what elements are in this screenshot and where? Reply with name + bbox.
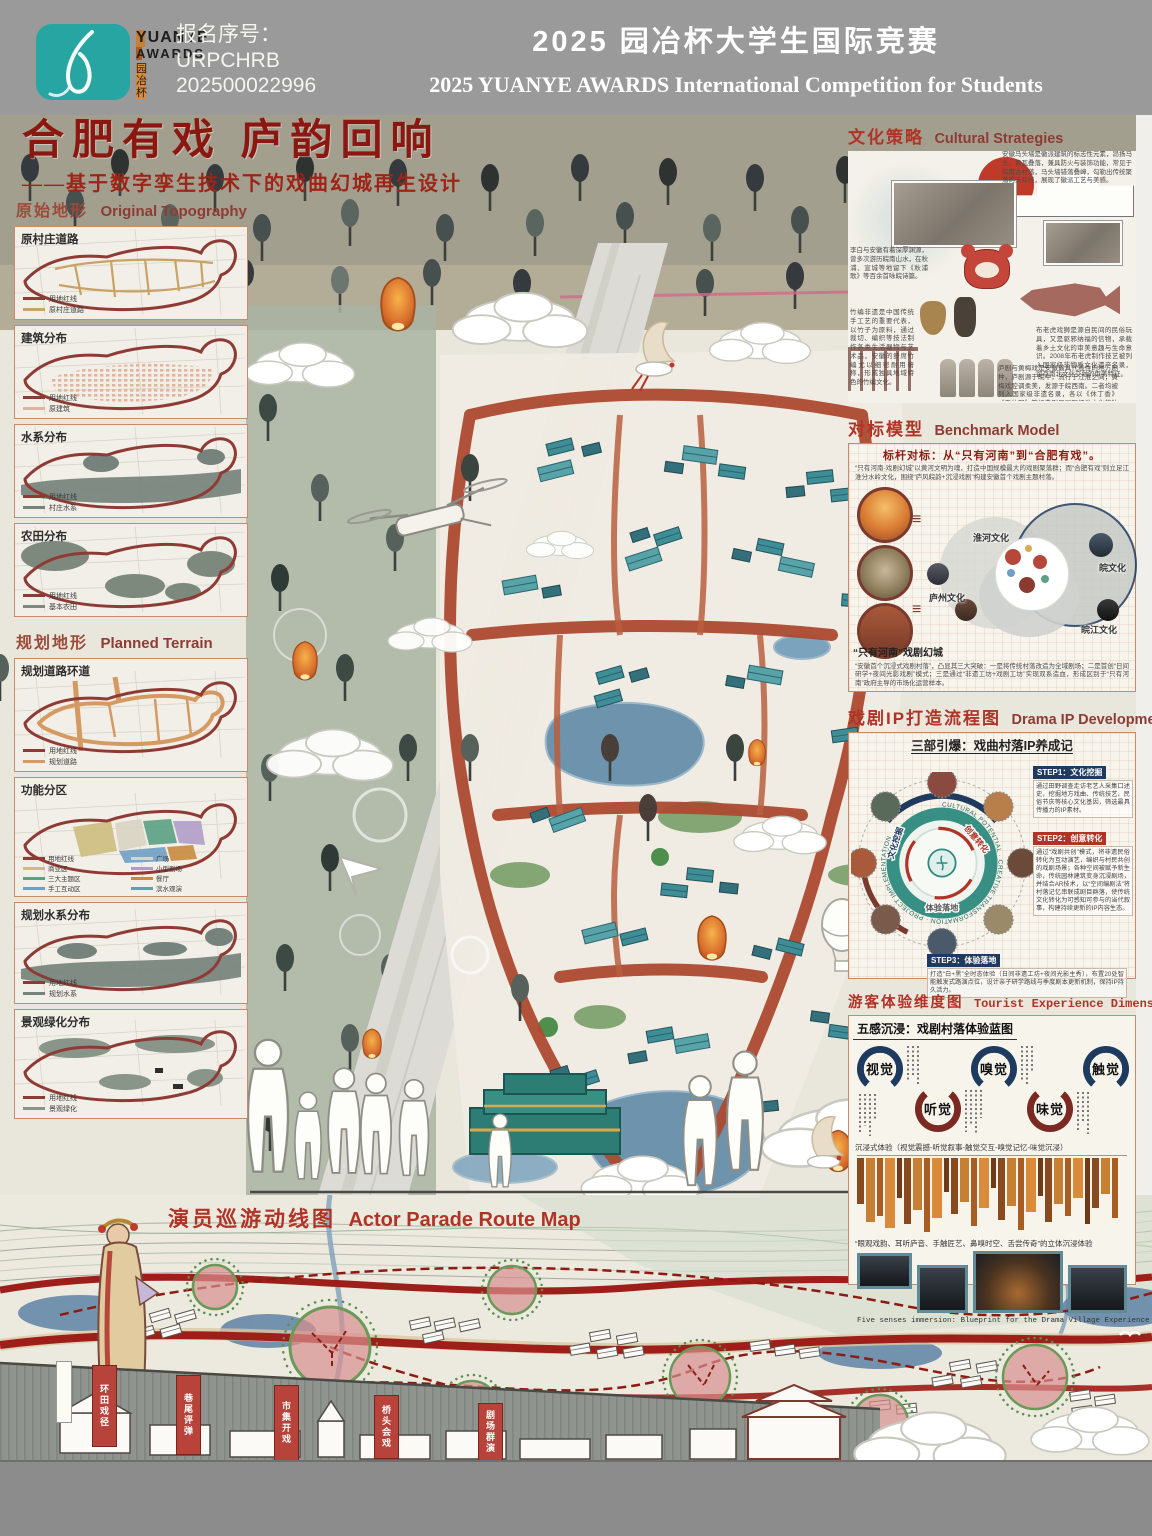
- venn-label: 淮河文化: [973, 531, 1009, 544]
- legend-item: 用地红线: [49, 1093, 77, 1103]
- section-title-cn: 规划地形: [16, 635, 88, 652]
- culture-note: 安徽马头墙是徽派建筑的标志性元素，昂扬马头、青瓦叠落，兼具防火与装饰功能，常见于…: [1002, 151, 1132, 186]
- registration-number: 报名序号： URPCHRB 202500022996: [176, 22, 316, 99]
- step-text: 通过“戏剧共创”模式，将非遗民俗转化为互动演艺，编织与村民共创的戏剧场景；各种空…: [1033, 846, 1133, 917]
- panel-tourist-experience: 游客体验维度图 Tourist Experience Dimensions Ma…: [848, 991, 1136, 1285]
- brand-line1: YUANYE: [136, 30, 145, 47]
- section-original-topography: 原始地形 Original Topography: [16, 197, 248, 221]
- map-legend: 用地红线 原建筑: [23, 391, 77, 413]
- brand-text: YUANYE AWARDS 园 冶 杯: [136, 30, 146, 99]
- parade-title: 演员巡游动线图 Actor Parade Route Map: [168, 1203, 581, 1233]
- map-legend: 用地红线 基本农田: [23, 589, 77, 611]
- right-strategy-column: 文化策略 Cultural Strategies 安徽马头墙是徽派建筑的标志性元…: [848, 123, 1136, 1297]
- map-label: 功能分区: [21, 782, 67, 798]
- legend-item: 用地红线: [49, 393, 77, 403]
- covered-bridge: [848, 347, 918, 391]
- map-legend: 用地红线 规划水系: [23, 976, 77, 998]
- section-title-cn: 原始地形: [16, 203, 88, 220]
- panel-title-en: Benchmark Model: [934, 423, 1059, 439]
- legend-item: 用地红线: [49, 591, 77, 601]
- stage-photo: [917, 1265, 968, 1313]
- panel-title-en: Tourist Experience Dimensions Map: [974, 997, 1152, 1011]
- competition-title-cn: 2025 园冶杯大学生国际竞赛: [330, 18, 1142, 60]
- ip-diagram-area: CULTURAL POTENTIAL · CREATIVE TRANSFORMA…: [849, 754, 1135, 978]
- photo-dot: [1097, 599, 1119, 621]
- legend-item: 原村庄道路: [49, 305, 84, 315]
- experience-subtitle: 五感沉浸：戏剧村落体验蓝图: [853, 1018, 1017, 1040]
- left-analysis-column: 原始地形 Original Topography 原村庄道路: [14, 193, 248, 1124]
- reference-photo-circle: [857, 487, 913, 543]
- legend-item: 用地红线: [48, 853, 74, 863]
- step-tag: STEP3：体验落地: [927, 954, 1000, 967]
- legend-item: 小型剧场: [156, 863, 182, 873]
- legend-item: 规划水系: [49, 989, 77, 999]
- panel-title-cn: 对标模型: [848, 420, 924, 439]
- benchmark-paragraph: “安徽首个沉浸式戏剧村落”，凸显其三大突破：一是将传统村落改造为全域剧场；二是首…: [849, 661, 1135, 691]
- legend-item: 用地红线: [49, 978, 77, 988]
- map-label: 规划水系分布: [21, 907, 90, 923]
- map-label: 规划道路环道: [21, 663, 90, 679]
- culture-note: 庐剧与黄梅戏是安徽最具代表性的地方剧种，庐剧源于皖中，流行于江淮之间；黄梅戏腔调…: [998, 365, 1118, 401]
- scene-banner: 巷尾评弹: [176, 1375, 201, 1455]
- map-legend: 用地红线 村庄水系: [23, 490, 77, 512]
- reg-code: URPCHRB: [176, 48, 316, 74]
- section-title-en: Original Topography: [100, 203, 246, 220]
- section-planned-terrain: 规划地形 Planned Terrain: [16, 629, 248, 653]
- venn-label: 庐州文化: [929, 591, 965, 604]
- competition-title-en: 2025 YUANYE AWARDS International Competi…: [330, 72, 1142, 98]
- ip-dot: [1033, 555, 1047, 569]
- panel-title-cn: 文化策略: [848, 128, 924, 147]
- wood-strip-collage: [857, 1155, 1127, 1236]
- panel-benchmark-model: 对标模型 Benchmark Model 标杆对标：从“只有河南”到“合肥有戏”…: [848, 415, 1136, 692]
- equals-mark: ≡: [912, 601, 921, 619]
- poster-title-block: 合肥有戏 庐韵回响 ——基于数字孪生技术下的戏曲幻城再生设计: [22, 119, 562, 196]
- pottery-vase: [920, 301, 946, 335]
- map-legend: 用地红线 规划道路: [23, 744, 77, 766]
- note-tag: [56, 1361, 72, 1423]
- stage-photos: [857, 1253, 1127, 1313]
- sense-label: 视觉: [866, 1059, 894, 1078]
- brand-cn: 园 冶 杯: [136, 64, 146, 99]
- panel-drama-ip: 戏剧IP打造流程图 Drama IP Development 三部引爆：戏曲村落…: [848, 704, 1136, 979]
- map-label: 景观绿化分布: [21, 1014, 90, 1030]
- panel-title-cn: 戏剧IP打造流程图: [848, 709, 1001, 728]
- ip-step1: STEP1：文化挖掘 通过田野调查走访老艺人采集口述史，挖掘地方戏曲、传统技艺、…: [1033, 762, 1133, 818]
- scene-banner: 环田戏径: [92, 1365, 117, 1447]
- ip-step2: STEP2：创意转化 通过“戏剧共创”模式，将非遗民俗转化为互动演艺，编织与村民…: [1033, 828, 1133, 917]
- scene-banner: 市集开戏: [274, 1385, 299, 1461]
- map-legend: 用地红线 广场 商业区 小型剧场 三大主题区 餐厅 手工互动区 滨水观演: [23, 852, 231, 892]
- panel-title: 文化策略 Cultural Strategies: [848, 123, 1136, 148]
- ip-dot: [1007, 569, 1015, 577]
- panel-title-cn: 游客体验维度图: [848, 995, 964, 1011]
- photo-dot: [927, 563, 949, 585]
- legend-item: 三大主题区: [48, 873, 81, 883]
- right-margin: [1136, 115, 1152, 1195]
- legend-item: 原建筑: [49, 404, 70, 414]
- sense-touch: 触觉: [1083, 1046, 1129, 1092]
- map-label: 建筑分布: [21, 330, 67, 346]
- micro-text-column: [1077, 1092, 1089, 1134]
- reg-label: 报名序号：: [176, 22, 316, 48]
- benchmark-caption: “只有河南”戏剧幻城: [853, 644, 943, 659]
- map-legend: 用地红线 原村庄道路: [23, 292, 84, 314]
- panel-title: 游客体验维度图 Tourist Experience Dimensions Ma…: [848, 991, 1136, 1012]
- ip-cycle-diagram: CULTURAL POTENTIAL · CREATIVE TRANSFORMA…: [851, 772, 1033, 954]
- legend-item: 手工互动区: [48, 883, 81, 893]
- legend-item: 用地红线: [49, 746, 77, 756]
- benchmark-diagram: ≡ ≡: [849, 485, 1135, 661]
- ip-subtitle: 三部引爆：戏曲村落IP养成记: [849, 733, 1135, 754]
- legend-item: 餐厅: [156, 873, 169, 883]
- legend-item: 广场: [156, 853, 169, 863]
- map-card-farmland-distribution: 农田分布 用地红线 基本农田: [14, 523, 248, 617]
- map-legend: 用地红线 景观绿化: [23, 1091, 77, 1113]
- sense-label: 触觉: [1092, 1059, 1120, 1078]
- benchmark-board: 标杆对标：从“只有河南”到“合肥有戏”。 “只有河南·戏剧幻城”以黄河文明为魂，…: [848, 443, 1136, 692]
- experience-english-caption: Five senses immersion: Blueprint for the…: [857, 1317, 1127, 1325]
- panel-cultural-strategies: 文化策略 Cultural Strategies 安徽马头墙是徽派建筑的标志性元…: [848, 123, 1136, 403]
- poster-board: 合肥有戏 庐韵回响 ——基于数字孪生技术下的戏曲幻城再生设计 原始地形 Orig…: [0, 115, 1152, 1536]
- reg-digits: 202500022996: [176, 73, 316, 99]
- ip-board: 三部引爆：戏曲村落IP养成记 CULTURAL POTENTIAL · CREA: [848, 732, 1136, 979]
- legend-item: 景观绿化: [49, 1104, 77, 1114]
- poster-title: 合肥有戏 庐韵回响: [22, 119, 562, 163]
- brand-line2: AWARDS: [136, 47, 142, 61]
- micro-text-column: [907, 1046, 919, 1084]
- culture-venn: 淮河文化 皖文化 庐州文化 皖江文化: [921, 503, 1133, 637]
- ip-ring-label: 体验落地: [926, 902, 960, 912]
- poster-subtitle: ——基于数字孪生技术下的戏曲幻城再生设计: [22, 167, 562, 196]
- ip-dot: [1041, 575, 1049, 583]
- logo-y-icon: [36, 24, 130, 100]
- scene-banner: 桥头会戏: [374, 1395, 399, 1459]
- historic-photo: [892, 181, 1016, 247]
- legend-item: 用地红线: [49, 492, 77, 502]
- pottery-vase: [954, 297, 976, 337]
- header-bar: YUANYE AWARDS 园 冶 杯 报名序号： URPCHRB 202500…: [0, 0, 1152, 115]
- legend-item: 村庄水系: [49, 503, 77, 513]
- venn-label: 皖江文化: [1081, 623, 1117, 636]
- panel-title: 对标模型 Benchmark Model: [848, 415, 1136, 440]
- map-card-water-distribution: 水系分布 用地红线 村庄水系: [14, 424, 248, 518]
- sense-hearing: 听觉: [915, 1086, 961, 1132]
- panel-title: 戏剧IP打造流程图 Drama IP Development: [848, 704, 1136, 729]
- sense-label: 嗅觉: [980, 1059, 1008, 1078]
- stage-photo: [1068, 1265, 1127, 1313]
- map-card-village-roads: 原村庄道路 用地红线 原村庄道路: [14, 226, 248, 320]
- scene-banner: 剧场群演: [478, 1403, 503, 1461]
- sense-vision: 视觉: [857, 1046, 903, 1092]
- legend-item: 用地红线: [49, 294, 77, 304]
- sense-taste: 味觉: [1027, 1086, 1073, 1132]
- immersion-line: “眼观戏韵、耳听庐音、手触匠艺、鼻嗅时空、舌尝传奇”的立体沉浸体验: [855, 1238, 1129, 1249]
- footer-strip: [0, 1460, 1152, 1536]
- micro-text-column: [859, 1094, 876, 1136]
- sense-label: 听觉: [924, 1099, 952, 1118]
- map-card-planned-ring-road: 规划道路环道 用地红线 规划道路: [14, 658, 248, 772]
- venn-label: 皖文化: [1099, 561, 1126, 574]
- five-senses-diagram: 视觉 听觉 嗅觉 味觉 触觉: [849, 1040, 1135, 1140]
- immersion-caption: 沉浸式体验（视觉震撼-听觉叙事-触觉交互-嗅觉记忆-味觉沉浸）: [855, 1142, 1129, 1153]
- reference-photo-circle: [857, 545, 913, 601]
- map-card-landscape-greening: 景观绿化分布 用地红线 景观绿化: [14, 1009, 248, 1119]
- map-label: 水系分布: [21, 429, 67, 445]
- historic-photo: [1044, 221, 1122, 265]
- panel-title-en: Cultural Strategies: [934, 131, 1063, 147]
- fish-artifact: [1020, 279, 1120, 323]
- yuanye-logo: [36, 24, 130, 100]
- section-title-en: Planned Terrain: [100, 635, 212, 652]
- cloth-tiger-toy: [964, 249, 1010, 289]
- legend-item: 商业区: [48, 863, 68, 873]
- micro-text-column: [1021, 1046, 1033, 1084]
- stage-photo-main: [973, 1251, 1064, 1313]
- step-text: 通过田野调查走访老艺人采集口述史，挖掘地方戏曲、传统技艺、民俗节庆等核心文化基因…: [1033, 780, 1133, 818]
- parade-title-en: Actor Parade Route Map: [348, 1209, 580, 1231]
- benchmark-headline: 标杆对标：从“只有河南”到“合肥有戏”。: [849, 444, 1135, 463]
- map-label: 农田分布: [21, 528, 67, 544]
- experience-board: 五感沉浸：戏剧村落体验蓝图 视觉 听觉 嗅觉 味觉 触觉 沉浸式体验（视觉震撼-…: [848, 1015, 1136, 1285]
- legend-item: 规划道路: [49, 757, 77, 767]
- map-card-planned-water: 规划水系分布 用地红线 规划水系: [14, 902, 248, 1004]
- cultural-collage: 安徽马头墙是徽派建筑的标志性元素，昂扬马头、青瓦叠落，兼具防火与装饰功能，常见于…: [848, 151, 1136, 403]
- ip-dot: [1025, 545, 1032, 552]
- parade-title-cn: 演员巡游动线图: [168, 1208, 336, 1231]
- sense-smell: 嗅觉: [971, 1046, 1017, 1092]
- sense-label: 味觉: [1036, 1099, 1064, 1118]
- micro-text-column: [965, 1090, 982, 1134]
- ip-dot: [1005, 549, 1021, 565]
- map-card-functional-zoning: 功能分区 用地红线 广场 商业区 小型剧场 三大主题区: [14, 777, 248, 897]
- photo-dot: [1089, 533, 1113, 557]
- map-card-building-distribution: 建筑分布 用地红线 原建筑: [14, 325, 248, 419]
- step-tag: STEP2：创意转化: [1033, 832, 1106, 845]
- legend-item: 基本农田: [49, 602, 77, 612]
- stage-photo: [857, 1253, 912, 1289]
- legend-item: 滨水观演: [156, 883, 182, 893]
- benchmark-paragraph: “只有河南·戏剧幻城”以黄河文明为魂，打造中国规模最大的戏剧聚落群；而“合肥有戏…: [849, 463, 1135, 485]
- step-tag: STEP1：文化挖掘: [1033, 766, 1106, 779]
- map-label: 原村庄道路: [21, 231, 79, 247]
- panel-title-en: Drama IP Development: [1012, 712, 1152, 728]
- ip-dot: [1019, 577, 1035, 593]
- equals-mark: ≡: [912, 511, 921, 529]
- competition-title: 2025 园冶杯大学生国际竞赛 2025 YUANYE AWARDS Inter…: [330, 18, 1142, 98]
- culture-note: 李白与安徽有着深厚渊源，曾多次游历皖南山水，在秋浦、宣城等地留下《秋浦歌》等百余…: [850, 247, 928, 282]
- competition-poster: YUANYE AWARDS 园 冶 杯 报名序号： URPCHRB 202500…: [0, 0, 1152, 1536]
